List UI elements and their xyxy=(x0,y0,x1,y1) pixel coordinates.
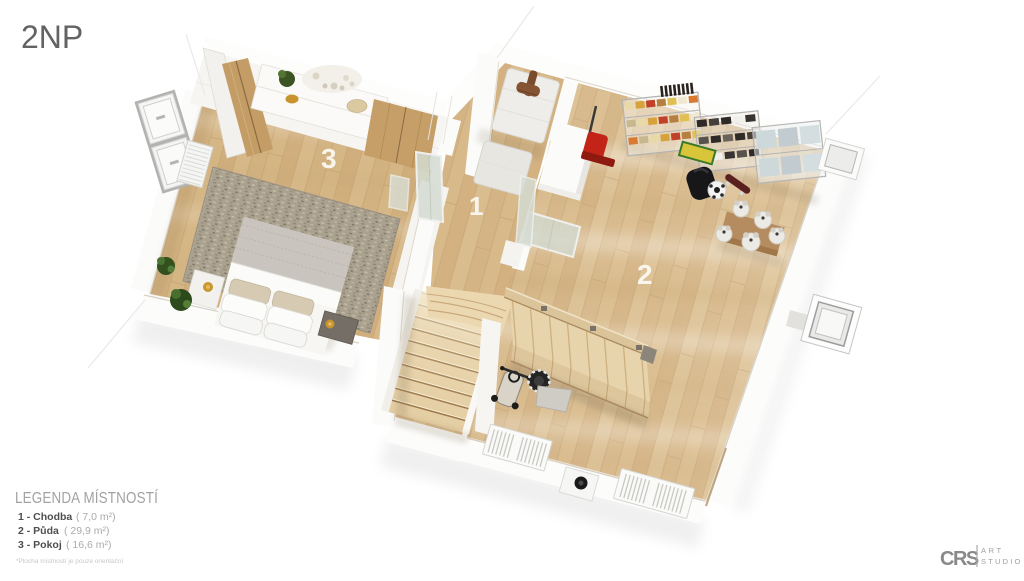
svg-text:*Plocha místností je pouze ori: *Plocha místností je pouze orientační xyxy=(16,558,124,565)
svg-text:3: 3 xyxy=(321,143,337,174)
svg-text:1 - Chodba: 1 - Chodba xyxy=(18,511,72,523)
svg-text:3 - Pokoj: 3 - Pokoj xyxy=(18,539,62,551)
svg-text:CRS: CRS xyxy=(940,548,979,570)
svg-text:2 - Půda: 2 - Půda xyxy=(18,525,59,537)
svg-text:STUDIO: STUDIO xyxy=(981,557,1023,566)
svg-text:( 7,0 m²): ( 7,0 m²) xyxy=(76,511,116,523)
svg-text:LEGENDA MÍSTNOSTÍ: LEGENDA MÍSTNOSTÍ xyxy=(15,488,158,507)
svg-text:2: 2 xyxy=(637,259,653,290)
svg-text:2NP: 2NP xyxy=(21,19,83,55)
svg-text:1: 1 xyxy=(469,191,483,221)
svg-text:( 16,6 m²): ( 16,6 m²) xyxy=(66,539,112,551)
svg-text:ART: ART xyxy=(981,546,1004,555)
svg-text:( 29,9 m²): ( 29,9 m²) xyxy=(64,525,110,537)
